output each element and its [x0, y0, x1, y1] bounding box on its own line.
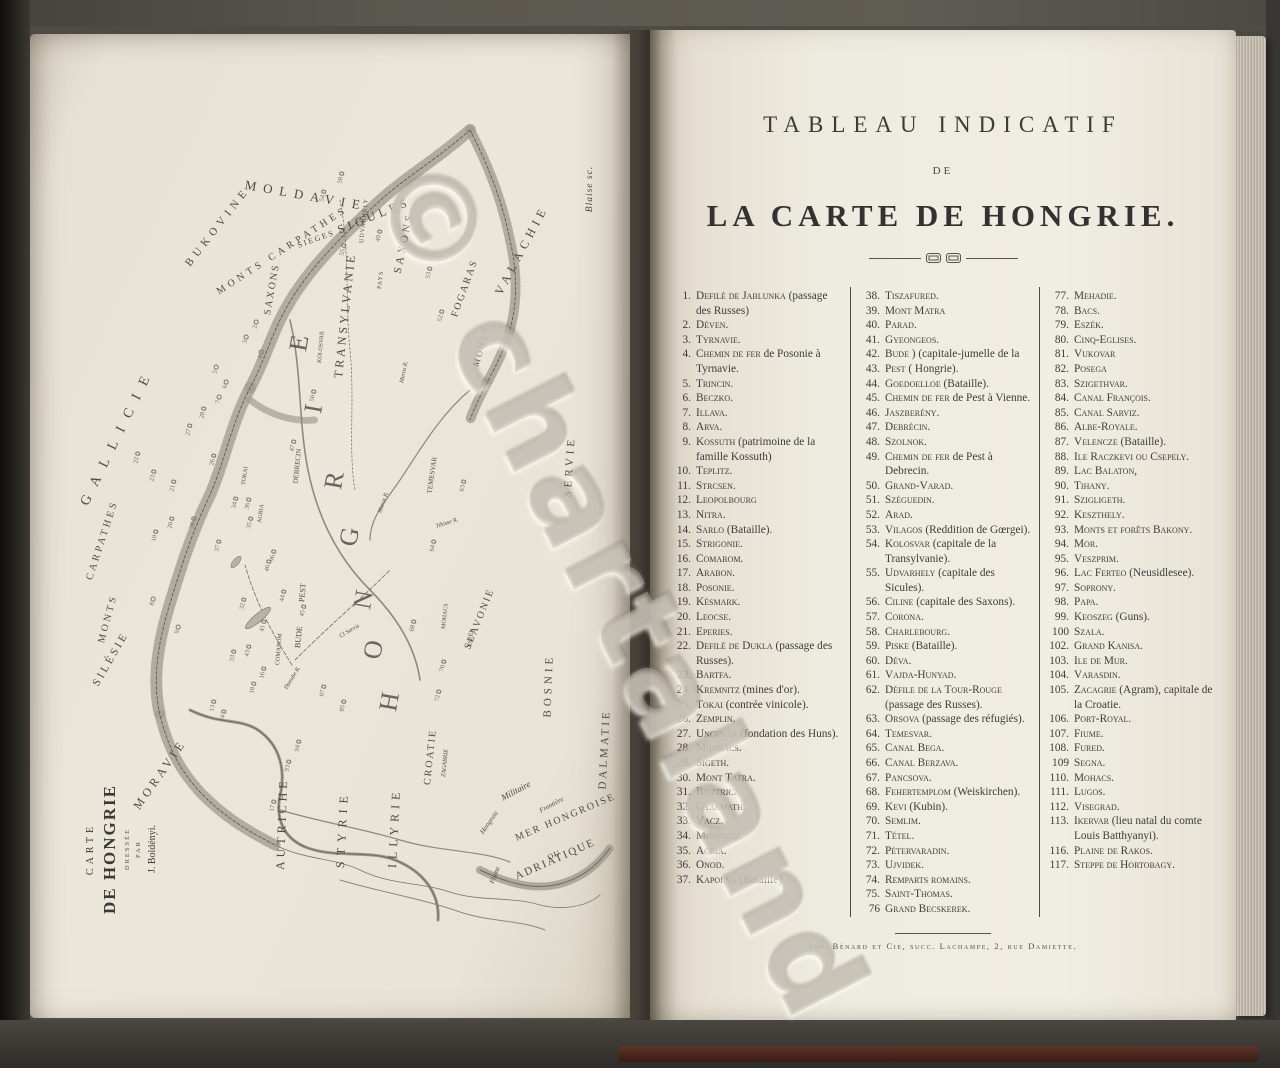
entry-number: 116.	[1044, 844, 1074, 859]
entry-number: 24.	[666, 683, 696, 698]
entry-number: 16.	[666, 552, 696, 567]
index-entry: 75.Saint-Thomas.	[855, 887, 1034, 902]
entry-number: 56.	[855, 595, 885, 610]
entry-text: Parad.	[885, 318, 1034, 333]
map-title-block: CARTE DE HONGRIE DRESSÉE PAR J. Boldényi…	[85, 769, 215, 929]
entry-number: 8.	[666, 420, 696, 435]
entry-number: 93.	[1044, 523, 1074, 538]
entry-text: Posega	[1074, 362, 1223, 377]
index-entry: 3.Tyrnavie.	[666, 333, 845, 348]
entry-text: Plaine de Rakos.	[1074, 844, 1223, 859]
entry-text: Défile de la Tour-Rouge (passage des Rus…	[885, 683, 1034, 712]
index-entry: 31.Bisztricz.	[666, 785, 845, 800]
entry-number: 91.	[1044, 493, 1074, 508]
index-entry: 61.Vajda-Hunyad.	[855, 668, 1034, 683]
ornament-divider	[650, 253, 1236, 263]
entry-text: Semlim.	[885, 814, 1034, 829]
index-entry: 51.Széguedin.	[855, 493, 1034, 508]
entry-text: Orsova (passage des réfugiés).	[885, 712, 1034, 727]
entry-number: 41.	[855, 333, 885, 348]
entry-text: Tiszafured.	[885, 289, 1034, 304]
index-column-3: 77.Mehadie.78.Bacs.79.Eszék.80.Cinq-Egli…	[1039, 287, 1228, 917]
entry-number: 32.	[666, 800, 696, 815]
entry-text: Déven.	[696, 318, 845, 333]
entry-number: 27.	[666, 727, 696, 742]
entry-number: 81.	[1044, 347, 1074, 362]
entry-text: Temesvar.	[885, 727, 1034, 742]
entry-number: 82.	[1044, 362, 1074, 377]
index-entry: 16.Comarom.	[666, 552, 845, 567]
entry-text: Kossuth (patrimoine de la famille Kossut…	[696, 435, 845, 464]
index-entry: 5.Trincin.	[666, 377, 845, 392]
entry-number: 102.	[1044, 639, 1074, 654]
entry-number: 99.	[1044, 610, 1074, 625]
entry-number: 106.	[1044, 712, 1074, 727]
index-entry: 81.Vukovar	[1044, 347, 1223, 362]
index-entry: 80.Cinq-Eglises.	[1044, 333, 1223, 348]
entry-text: Teplitz.	[696, 464, 845, 479]
index-entry: 96.Lac Ferteo (Neusidlesee).	[1044, 566, 1223, 581]
entry-text: Monts et forêts Bakony.	[1074, 523, 1223, 538]
entry-number: 45.	[855, 391, 885, 406]
index-entry: 53.Vilagos (Reddition de Gœrgei).	[855, 523, 1034, 538]
map-title-main: DE HONGRIE	[100, 769, 120, 929]
index-entry: 116.Plaine de Rakos.	[1044, 844, 1223, 859]
entry-number: 87.	[1044, 435, 1074, 450]
entry-text: Bartfa.	[696, 668, 845, 683]
entry-text: Canal Berzava.	[885, 756, 1034, 771]
index-entry: 83.Szigethvar.	[1044, 377, 1223, 392]
index-entry: 78.Bacs.	[1044, 304, 1223, 319]
entry-number: 22.	[666, 639, 696, 668]
index-entry: 9.Kossuth (patrimoine de la famille Koss…	[666, 435, 845, 464]
ornament-bead	[926, 253, 941, 263]
page-title: TABLEAU INDICATIF	[650, 112, 1236, 138]
entry-text: Szigligeth.	[1074, 493, 1223, 508]
entry-number: 100	[1044, 625, 1074, 640]
entry-number: 46.	[855, 406, 885, 421]
entry-number: 36.	[666, 858, 696, 873]
entry-text: Mont Tatra.	[696, 771, 845, 786]
index-entry: 41.Gyeongeos.	[855, 333, 1034, 348]
index-entry: 2.Déven.	[666, 318, 845, 333]
entry-text: Onod.	[696, 858, 845, 873]
entry-text: Udvarhely (capitale des Sicules).	[885, 566, 1034, 595]
entry-number: 75.	[855, 887, 885, 902]
right-page-index: TABLEAU INDICATIF DE LA CARTE DE HONGRIE…	[650, 30, 1236, 1022]
entry-text: Sigeth.	[696, 756, 845, 771]
entry-text: Grand Becskerek.	[885, 902, 1034, 917]
index-entry: 84.Canal François.	[1044, 391, 1223, 406]
book-cover-edge	[618, 1046, 1258, 1062]
entry-number: 110.	[1044, 771, 1074, 786]
entry-number: 15.	[666, 537, 696, 552]
index-columns: 1.Defilé de Jablunka (passage des Russes…	[662, 287, 1228, 917]
entry-text: Zacagrie (Agram), capitale de la Croatie…	[1074, 683, 1223, 712]
entry-text: Gyeongeos.	[885, 333, 1034, 348]
entry-number: 74.	[855, 873, 885, 888]
entry-text: Piske (Bataille).	[885, 639, 1034, 654]
entry-text: Mohacs.	[1074, 771, 1223, 786]
index-entry: 66.Canal Berzava.	[855, 756, 1034, 771]
index-entry: 70.Semlim.	[855, 814, 1034, 829]
index-entry: 52.Arad.	[855, 508, 1034, 523]
index-entry: 68.Fehertemplom (Weiskirchen).	[855, 785, 1034, 800]
entry-number: 73.	[855, 858, 885, 873]
index-entry: 95.Veszprim.	[1044, 552, 1223, 567]
entry-text: Vajda-Hunyad.	[885, 668, 1034, 683]
index-entry: 105.Zacagrie (Agram), capitale de la Cro…	[1044, 683, 1223, 712]
index-entry: 74.Remparts romains.	[855, 873, 1034, 888]
entry-number: 95.	[1044, 552, 1074, 567]
index-entry: 109Segna.	[1044, 756, 1223, 771]
entry-text: Leopolbourg	[696, 493, 845, 508]
index-entry: 71.Tétel.	[855, 829, 1034, 844]
entry-text: Kremnitz (mines d'or).	[696, 683, 845, 698]
entry-number: 117.	[1044, 858, 1074, 873]
entry-number: 97.	[1044, 581, 1074, 596]
entry-text: Strcsen.	[696, 479, 845, 494]
index-entry: 15.Strigonie.	[666, 537, 845, 552]
entry-text: Eszék.	[1074, 318, 1223, 333]
entry-number: 10.	[666, 464, 696, 479]
entry-text: Pest ( Hongrie).	[885, 362, 1034, 377]
entry-text: Fiume.	[1074, 727, 1223, 742]
entry-number: 19.	[666, 595, 696, 610]
index-entry: 65.Canal Bega.	[855, 741, 1034, 756]
entry-text: Defilé de Dukla (passage des Russes).	[696, 639, 845, 668]
entry-text: Tyrnavie.	[696, 333, 845, 348]
entry-text: Pétervaradin.	[885, 844, 1034, 859]
entry-number: 30.	[666, 771, 696, 786]
entry-number: 80.	[1044, 333, 1074, 348]
entry-text: Ujvidek.	[885, 858, 1034, 873]
entry-text: Albe-Royale.	[1074, 420, 1223, 435]
entry-number: 62.	[855, 683, 885, 712]
entry-text: Arad.	[885, 508, 1034, 523]
entry-text: Port-Royal.	[1074, 712, 1223, 727]
index-entry: 21.Eperies.	[666, 625, 845, 640]
left-page-map: MOLDAVIEBUKOVINEGALLICIEMONTS CARPATHESC…	[30, 34, 630, 1018]
entry-number: 96.	[1044, 566, 1074, 581]
entry-text: Fehertemplom (Weiskirchen).	[885, 785, 1034, 800]
index-entry: 102.Grand Kanisa.	[1044, 639, 1223, 654]
entry-text: Vukovar	[1074, 347, 1223, 362]
entry-number: 71.	[855, 829, 885, 844]
index-entry: 1.Defilé de Jablunka (passage des Russes…	[666, 289, 845, 318]
index-entry: 10.Teplitz.	[666, 464, 845, 479]
entry-number: 70.	[855, 814, 885, 829]
index-entry: 62.Défile de la Tour-Rouge (passage des …	[855, 683, 1034, 712]
index-entry: 45.Chemin de fer de Pest à Vienne.	[855, 391, 1034, 406]
entry-number: 88.	[1044, 450, 1074, 465]
entry-number: 26.	[666, 712, 696, 727]
index-entry: 98.Papa.	[1044, 595, 1223, 610]
printer-imprint: Imp. Bénard et Cie, succ. Lachampe, 2, r…	[650, 941, 1236, 951]
index-entry: 42.Bude ) (capitale-jumelle de la	[855, 347, 1034, 362]
index-entry: 18.Posonie.	[666, 581, 845, 596]
index-entry: 57.Corona.	[855, 610, 1034, 625]
entry-number: 58.	[855, 625, 885, 640]
index-entry: 97.Soprony.	[1044, 581, 1223, 596]
index-entry: 37.Kapolna (Bataille).	[666, 873, 845, 888]
entry-number: 9.	[666, 435, 696, 464]
book-page-stack-edge	[1234, 36, 1266, 1016]
entry-number: 65.	[855, 741, 885, 756]
index-entry: 108.Fured.	[1044, 741, 1223, 756]
index-entry: 72.Pétervaradin.	[855, 844, 1034, 859]
entry-number: 79.	[1044, 318, 1074, 333]
index-entry: 47.Debrécin.	[855, 420, 1034, 435]
entry-number: 34.	[666, 829, 696, 844]
index-entry: 39.Mont Matra	[855, 304, 1034, 319]
index-entry: 44.Goedoelloe (Bataille).	[855, 377, 1034, 392]
index-entry: 4.Chemin de fer de Posonie à Tyrnavie.	[666, 347, 845, 376]
entry-text: Jaszberény.	[885, 406, 1034, 421]
index-entry: 11.Strcsen.	[666, 479, 845, 494]
index-entry: 55.Udvarhely (capitale des Sicules).	[855, 566, 1034, 595]
entry-text: Saint-Thomas.	[885, 887, 1034, 902]
index-entry: 6.Beczko.	[666, 391, 845, 406]
entry-text: Veszprim.	[1074, 552, 1223, 567]
entry-text: Canal François.	[1074, 391, 1223, 406]
photo-background-top	[0, 0, 1280, 26]
index-entry: 23.Bartfa.	[666, 668, 845, 683]
index-entry: 89.Lac Balaton,	[1044, 464, 1223, 479]
entry-text: Lac Balaton,	[1074, 464, 1223, 479]
index-entry: 86.Albe-Royale.	[1044, 420, 1223, 435]
entry-text: Ile de Mur.	[1074, 654, 1223, 669]
map-title-par: PAR	[135, 769, 142, 929]
index-entry: 8.Arva.	[666, 420, 845, 435]
entry-number: 5.	[666, 377, 696, 392]
entry-number: 49.	[855, 450, 885, 479]
index-entry: 28.Munkacs.	[666, 741, 845, 756]
index-entry: 85.Canal Sarviz.	[1044, 406, 1223, 421]
entry-number: 78.	[1044, 304, 1074, 319]
entry-text: Leocse.	[696, 610, 845, 625]
index-entry: 7.Illava.	[666, 406, 845, 421]
entry-number: 1.	[666, 289, 696, 318]
entry-text: Grand-Varad.	[885, 479, 1034, 494]
index-entry: 26.Zemplin.	[666, 712, 845, 727]
index-entry: 13.Nitra.	[666, 508, 845, 523]
entry-number: 29.	[666, 756, 696, 771]
ornament-bead	[946, 253, 961, 263]
index-entry: 113.Ikervar (lieu natal du comte Louis B…	[1044, 814, 1223, 843]
index-entry: 17.Arabon.	[666, 566, 845, 581]
entry-text: Defilé de Jablunka (passage des Russes)	[696, 289, 845, 318]
entry-number: 76	[855, 902, 885, 917]
entry-text: Chemin de fer de Posonie à Tyrnavie.	[696, 347, 845, 376]
entry-number: 67.	[855, 771, 885, 786]
entry-text: Széguedin.	[885, 493, 1034, 508]
entry-text: Soprony.	[1074, 581, 1223, 596]
entry-text: Posonie.	[696, 581, 845, 596]
entry-number: 31.	[666, 785, 696, 800]
entry-text: Kevi (Kubin).	[885, 800, 1034, 815]
index-entry: 111.Lugos.	[1044, 785, 1223, 800]
index-entry: 100Szala.	[1044, 625, 1223, 640]
entry-text: Trincin.	[696, 377, 845, 392]
entry-number: 84.	[1044, 391, 1074, 406]
index-entry: 94.Mor.	[1044, 537, 1223, 552]
entry-text: Szolnok.	[885, 435, 1034, 450]
entry-text: Varasdin.	[1074, 668, 1223, 683]
entry-text: Eperies.	[696, 625, 845, 640]
entry-number: 43.	[855, 362, 885, 377]
entry-text: Illava.	[696, 406, 845, 421]
entry-number: 11.	[666, 479, 696, 494]
index-column-1: 1.Defilé de Jablunka (passage des Russes…	[662, 287, 850, 917]
ornament-line	[869, 258, 921, 259]
entry-number: 57.	[855, 610, 885, 625]
entry-text: Chemin de fer de Pest à Debrecin.	[885, 450, 1034, 479]
entry-text: Beczko.	[696, 391, 845, 406]
index-entry: 112.Visegrad.	[1044, 800, 1223, 815]
entry-number: 52.	[855, 508, 885, 523]
index-column-2: 38.Tiszafured.39.Mont Matra40.Parad.41.G…	[850, 287, 1039, 917]
entry-number: 94.	[1044, 537, 1074, 552]
entry-text: Bude ) (capitale-jumelle de la	[885, 347, 1034, 362]
imprint-rule	[895, 933, 991, 934]
entry-text: Keoszeg (Guns).	[1074, 610, 1223, 625]
index-entry: 38.Tiszafured.	[855, 289, 1034, 304]
entry-number: 38.	[855, 289, 885, 304]
entry-text: Miskolcz.	[696, 829, 845, 844]
entry-text: Tihany.	[1074, 479, 1223, 494]
entry-number: 60.	[855, 654, 885, 669]
entry-text: Comarom.	[696, 552, 845, 567]
index-entry: 73.Ujvidek.	[855, 858, 1034, 873]
index-entry: 54.Kolosvar (capitale de la Transylvanie…	[855, 537, 1034, 566]
entry-text: Kolosvar (capitale de la Transylvanie).	[885, 537, 1034, 566]
entry-text: Szigethvar.	[1074, 377, 1223, 392]
entry-text: Mehadie.	[1074, 289, 1223, 304]
book-spine-edge	[0, 0, 30, 1068]
index-entry: 90.Tihany.	[1044, 479, 1223, 494]
entry-number: 111.	[1044, 785, 1074, 800]
index-entry: 48.Szolnok.	[855, 435, 1034, 450]
index-entry: 49.Chemin de fer de Pest à Debrecin.	[855, 450, 1034, 479]
entry-number: 21.	[666, 625, 696, 640]
index-entry: 59.Piske (Bataille).	[855, 639, 1034, 654]
entry-number: 69.	[855, 800, 885, 815]
index-entry: 35.Agria.	[666, 844, 845, 859]
map-title-dressee: DRESSÉE	[124, 769, 131, 929]
entry-text: Arabon.	[696, 566, 845, 581]
index-entry: 87.Velencze (Bataille).	[1044, 435, 1223, 450]
entry-number: 61.	[855, 668, 885, 683]
index-entry: 92.Keszthely.	[1044, 508, 1223, 523]
entry-text: Mont Matra	[885, 304, 1034, 319]
entry-number: 12.	[666, 493, 696, 508]
entry-number: 2.	[666, 318, 696, 333]
entry-number: 72.	[855, 844, 885, 859]
entry-number: 66.	[855, 756, 885, 771]
entry-number: 103.	[1044, 654, 1074, 669]
entry-text: Visegrad.	[1074, 800, 1223, 815]
entry-number: 18.	[666, 581, 696, 596]
entry-text: Corona.	[885, 610, 1034, 625]
index-entry: 93.Monts et forêts Bakony.	[1044, 523, 1223, 538]
index-entry: 34.Miskolcz.	[666, 829, 845, 844]
entry-text: Papa.	[1074, 595, 1223, 610]
index-entry: 33.Vacz.	[666, 814, 845, 829]
entry-number: 33.	[666, 814, 696, 829]
entry-number: 109	[1044, 756, 1074, 771]
entry-text: Bisztricz.	[696, 785, 845, 800]
map-title-author: J. Boldényi.	[147, 769, 158, 929]
entry-text: Arva.	[696, 420, 845, 435]
entry-text: Vilagos (Reddition de Gœrgei).	[885, 523, 1034, 538]
entry-number: 112.	[1044, 800, 1074, 815]
entry-number: 23.	[666, 668, 696, 683]
photo-background-right	[1266, 0, 1280, 1068]
entry-text: Gyarmath.	[696, 800, 845, 815]
entry-text: Sarlo (Bataille).	[696, 523, 845, 538]
entry-text: Késmark.	[696, 595, 845, 610]
entry-text: Pancsova.	[885, 771, 1034, 786]
entry-number: 53.	[855, 523, 885, 538]
entry-text: Nitra.	[696, 508, 845, 523]
entry-text: Kapolna (Bataille).	[696, 873, 845, 888]
entry-text: Munkacs.	[696, 741, 845, 756]
entry-number: 85.	[1044, 406, 1074, 421]
index-entry: 20.Leocse.	[666, 610, 845, 625]
index-entry: 46.Jaszberény.	[855, 406, 1034, 421]
entry-text: Lugos.	[1074, 785, 1223, 800]
entry-number: 104.	[1044, 668, 1074, 683]
index-entry: 50.Grand-Varad.	[855, 479, 1034, 494]
index-entry: 107.Fiume.	[1044, 727, 1223, 742]
entry-number: 107.	[1044, 727, 1074, 742]
entry-text: Fured.	[1074, 741, 1223, 756]
index-entry: 88.Ile Raczkevi ou Csepely.	[1044, 450, 1223, 465]
index-entry: 77.Mehadie.	[1044, 289, 1223, 304]
entry-number: 51.	[855, 493, 885, 508]
index-entry: 69.Kevi (Kubin).	[855, 800, 1034, 815]
entry-number: 86.	[1044, 420, 1074, 435]
entry-number: 68.	[855, 785, 885, 800]
entry-text: Tokai (contrée vinicole).	[696, 698, 845, 713]
entry-number: 28.	[666, 741, 696, 756]
index-entry: 76Grand Becskerek.	[855, 902, 1034, 917]
index-entry: 29.Sigeth.	[666, 756, 845, 771]
entry-number: 47.	[855, 420, 885, 435]
index-entry: 91.Szigligeth.	[1044, 493, 1223, 508]
index-entry: 32.Gyarmath.	[666, 800, 845, 815]
page-title-de: DE	[650, 165, 1236, 177]
entry-text: Canal Bega.	[885, 741, 1034, 756]
index-entry: 99.Keoszeg (Guns).	[1044, 610, 1223, 625]
entry-number: 20.	[666, 610, 696, 625]
entry-text: Szala.	[1074, 625, 1223, 640]
entry-text: Cinq-Eglises.	[1074, 333, 1223, 348]
entry-number: 83.	[1044, 377, 1074, 392]
index-entry: 27.Unghvar (fondation des Huns).	[666, 727, 845, 742]
index-entry: 19.Késmark.	[666, 595, 845, 610]
entry-text: Zemplin.	[696, 712, 845, 727]
index-entry: 63.Orsova (passage des réfugiés).	[855, 712, 1034, 727]
entry-text: Grand Kanisa.	[1074, 639, 1223, 654]
index-entry: 79.Eszék.	[1044, 318, 1223, 333]
entry-number: 92.	[1044, 508, 1074, 523]
entry-number: 63.	[855, 712, 885, 727]
entry-text: Unghvar (fondation des Huns).	[696, 727, 845, 742]
index-entry: 22.Defilé de Dukla (passage des Russes).	[666, 639, 845, 668]
entry-number: 48.	[855, 435, 885, 450]
